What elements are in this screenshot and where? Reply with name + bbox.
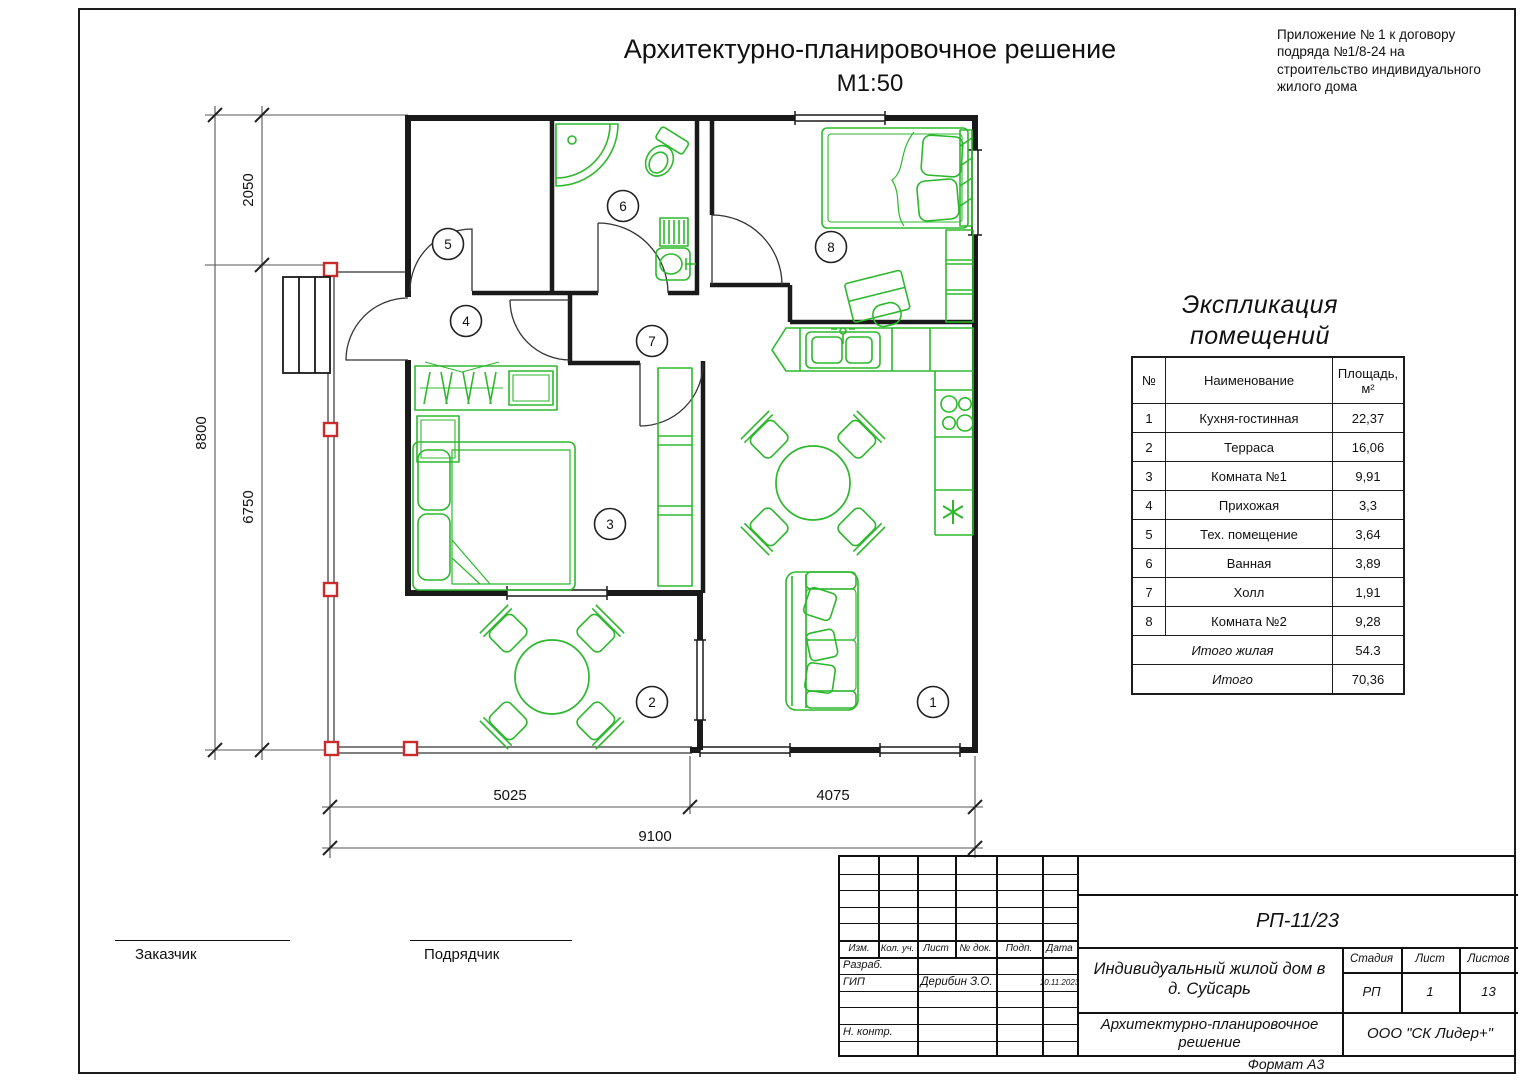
table-row: 8 Комната №2 9,28 <box>1132 607 1404 636</box>
kitchen-sink <box>806 328 880 368</box>
stamp-col-list: Лист <box>917 940 955 957</box>
appendix-line: жилого дома <box>1277 78 1505 95</box>
dim-9100: 9100 <box>638 828 671 845</box>
table-row: 7 Холл 1,91 <box>1132 578 1404 607</box>
explication-title-line: Экспликация <box>1136 290 1384 321</box>
table-row: 1 Кухня-гостинная 22,37 <box>1132 404 1404 433</box>
stamp-col-podp: Подп. <box>996 940 1042 957</box>
cell-num: 3 <box>1132 462 1166 491</box>
header-area-line2: м² <box>1337 381 1399 396</box>
shower-cabin <box>556 124 618 186</box>
fridge-symbol <box>943 500 963 524</box>
room-marker-8: 8 <box>816 232 847 263</box>
terrace-posts <box>324 263 417 755</box>
room-number-2: 2 <box>648 695 656 710</box>
cell-num: 2 <box>1132 433 1166 462</box>
explication-title-line: помещений <box>1136 321 1384 352</box>
room-marker-4: 4 <box>451 306 482 337</box>
table-row: 4 Прихожая 3,3 <box>1132 491 1404 520</box>
room-number-5: 5 <box>444 237 452 252</box>
title-block: Изм. Кол. уч. Лист № док. Подп. Дата Раз… <box>838 855 1516 1057</box>
cell-num: 4 <box>1132 491 1166 520</box>
cell-area: 9,28 <box>1333 607 1405 636</box>
stamp-stage-label: Стадия <box>1342 947 1401 972</box>
cell-name: Холл <box>1166 578 1333 607</box>
cell-num: 1 <box>1132 404 1166 433</box>
cell-name: Тех. помещение <box>1166 520 1333 549</box>
cell-num: 7 <box>1132 578 1166 607</box>
stamp-drawing-title: Архитектурно-планировочное решение <box>1077 1012 1342 1055</box>
stamp-company: ООО "СК Лидер+" <box>1342 1012 1518 1055</box>
stamp-sheets-value: 13 <box>1459 972 1518 1012</box>
customer-label: Заказчик <box>135 946 197 963</box>
room-number-3: 3 <box>606 517 614 532</box>
explication-table: № Наименование Площадь, м² 1 Кухня-гости… <box>1131 356 1405 695</box>
cell-area: 1,91 <box>1333 578 1405 607</box>
room-marker-6: 6 <box>608 191 639 222</box>
contractor-signature-line <box>410 940 572 941</box>
stamp-row-developer: Разраб. <box>840 957 917 974</box>
stamp-col-ndok: № док. <box>955 940 996 957</box>
cell-name: Комната №1 <box>1166 462 1333 491</box>
cell-area: 3,89 <box>1333 549 1405 578</box>
room-number-6: 6 <box>619 199 627 214</box>
header-area-line1: Площадь, <box>1337 366 1399 381</box>
door-arcs <box>346 215 782 426</box>
table-row: 5 Тех. помещение 3,64 <box>1132 520 1404 549</box>
total-label: Итого жилая <box>1132 636 1333 665</box>
total-area: 54.3 <box>1333 636 1405 665</box>
header-num: № <box>1132 357 1166 404</box>
cell-name: Прихожая <box>1166 491 1333 520</box>
toilet <box>637 126 689 183</box>
stamp-sheet-value: 1 <box>1401 972 1459 1012</box>
stamp-doc-number: РП-11/23 <box>1077 894 1518 947</box>
room-marker-3: 3 <box>595 509 626 540</box>
wardrobe-room8 <box>946 230 973 322</box>
header-name: Наименование <box>1166 357 1333 404</box>
table-row: 6 Ванная 3,89 <box>1132 549 1404 578</box>
appendix-line: Приложение № 1 к договору <box>1277 26 1505 43</box>
sofa <box>786 572 858 710</box>
dim-4075: 4075 <box>816 787 849 804</box>
appendix-line: подряда №1/8-24 на <box>1277 43 1505 60</box>
stamp-stage-value: РП <box>1342 972 1401 1012</box>
dim-8800: 8800 <box>193 416 210 449</box>
bed-room3 <box>413 442 575 590</box>
dimension-labels: 8800 2050 6750 5025 4075 9100 <box>193 173 850 845</box>
stamp-date: 10.11.2023 <box>1042 974 1077 991</box>
stamp-col-koluch: Кол. уч. <box>878 940 917 957</box>
drawing-sheet: 8800 2050 6750 5025 4075 9100 <box>0 0 1527 1080</box>
dining-table-set <box>741 411 885 555</box>
dim-2050: 2050 <box>240 173 257 206</box>
appendix-note: Приложение № 1 к договору подряда №1/8-2… <box>1277 26 1505 95</box>
cell-name: Комната №2 <box>1166 607 1333 636</box>
cell-name: Ванная <box>1166 549 1333 578</box>
total-label: Итого <box>1132 665 1333 695</box>
room-number-4: 4 <box>462 314 470 329</box>
terrace-table-set <box>480 605 624 749</box>
cell-area: 3,3 <box>1333 491 1405 520</box>
total-area: 70,36 <box>1333 665 1405 695</box>
stamp-row-control: Н. контр. <box>840 1024 917 1041</box>
explication-title: Экспликация помещений <box>1136 290 1384 353</box>
drawing-scale: М1:50 <box>560 70 1180 98</box>
cell-name: Кухня-гостинная <box>1166 404 1333 433</box>
cell-num: 8 <box>1132 607 1166 636</box>
room-number-8: 8 <box>827 240 835 255</box>
cell-area: 16,06 <box>1333 433 1405 462</box>
cell-num: 6 <box>1132 549 1166 578</box>
wardrobe-room3 <box>415 362 557 410</box>
explication-header-row: № Наименование Площадь, м² <box>1132 357 1404 404</box>
windows <box>507 111 982 757</box>
appendix-line: строительство индивидуального <box>1277 61 1505 78</box>
room-marker-1: 1 <box>918 687 949 718</box>
totals-row: Итого 70,36 <box>1132 665 1404 695</box>
dim-5025: 5025 <box>493 787 526 804</box>
stamp-col-data: Дата <box>1042 940 1077 957</box>
room-number-7: 7 <box>648 334 656 349</box>
nightstand-room3 <box>417 416 459 462</box>
bed-room8 <box>822 128 968 228</box>
room-marker-2: 2 <box>637 687 668 718</box>
stamp-row-chief: ГИП <box>840 974 917 991</box>
cell-area: 3,64 <box>1333 520 1405 549</box>
stamp-sheet-label: Лист <box>1401 947 1459 972</box>
page-title: Архитектурно-планировочное решение <box>560 34 1180 65</box>
room-marker-7: 7 <box>637 326 668 357</box>
totals-row: Итого жилая 54.3 <box>1132 636 1404 665</box>
room-number-1: 1 <box>929 695 937 710</box>
stamp-chief-name: Дерибин З.О. <box>917 974 996 991</box>
stamp-col-izm: Изм. <box>840 940 878 957</box>
contractor-label: Подрядчик <box>424 946 499 963</box>
customer-signature-line <box>115 940 290 941</box>
dimension-lines <box>205 106 983 858</box>
entrance-porch <box>283 277 330 373</box>
cell-num: 5 <box>1132 520 1166 549</box>
stamp-project-name: Индивидуальный жилой дом в д. Суйсарь <box>1077 947 1342 1012</box>
cell-name: Терраса <box>1166 433 1333 462</box>
washing-machine <box>660 218 688 246</box>
dim-6750: 6750 <box>240 490 257 523</box>
format-label: Формат А3 <box>1221 1056 1351 1072</box>
table-row: 3 Комната №1 9,91 <box>1132 462 1404 491</box>
header-area: Площадь, м² <box>1333 357 1405 404</box>
shelf-room3 <box>658 368 692 586</box>
cell-area: 22,37 <box>1333 404 1405 433</box>
stove <box>941 396 973 431</box>
room-marker-5: 5 <box>433 229 464 260</box>
table-row: 2 Терраса 16,06 <box>1132 433 1404 462</box>
cell-area: 9,91 <box>1333 462 1405 491</box>
stamp-sheets-label: Листов <box>1459 947 1518 972</box>
